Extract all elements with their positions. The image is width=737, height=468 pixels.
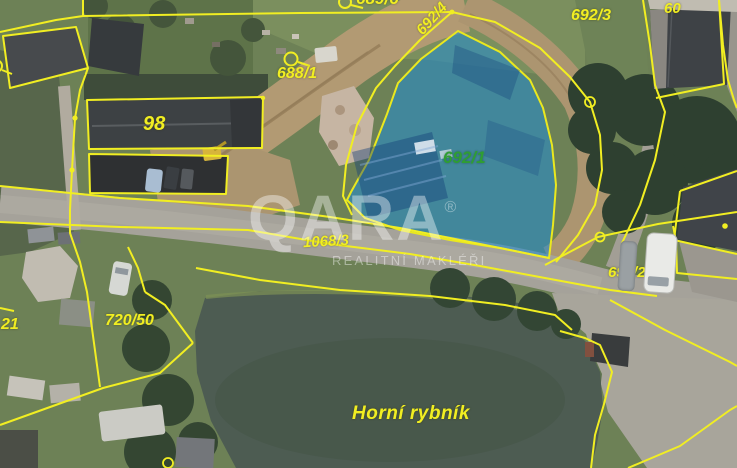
- pond-name-label: Horní rybník: [352, 403, 470, 425]
- boundary-lines-layer: [0, 0, 737, 468]
- parcel-label-60: 60: [664, 0, 681, 17]
- parked-white-van: [643, 232, 678, 294]
- parcel-label-98: 98: [143, 113, 165, 136]
- culture-symbol-left-icon: [0, 60, 2, 72]
- parcel-label-688-1: 688/1: [277, 65, 317, 83]
- vertex-circle-icon: [163, 458, 173, 468]
- parcel-label-692-3: 692/3: [571, 7, 611, 25]
- parcel-label-21-clipped: 21: [1, 316, 19, 334]
- parcel-boundaries: [0, 0, 737, 468]
- parcel-label-1068-3: 1068/3: [303, 232, 350, 251]
- culture-symbol-icon: [285, 53, 298, 66]
- van-windshield: [647, 276, 669, 286]
- parcel-label-689-6: 689/6: [356, 0, 399, 9]
- parcel-label-692-1-highlighted: 692/1: [443, 148, 486, 168]
- culture-symbol-top-icon: [339, 0, 351, 8]
- cadastral-map-canvas: 689/6 692/4 692/3 60 688/1 98 692/1 1068…: [0, 0, 737, 468]
- parked-gray-car: [617, 240, 637, 291]
- parcel-label-720-50: 720/50: [105, 312, 154, 330]
